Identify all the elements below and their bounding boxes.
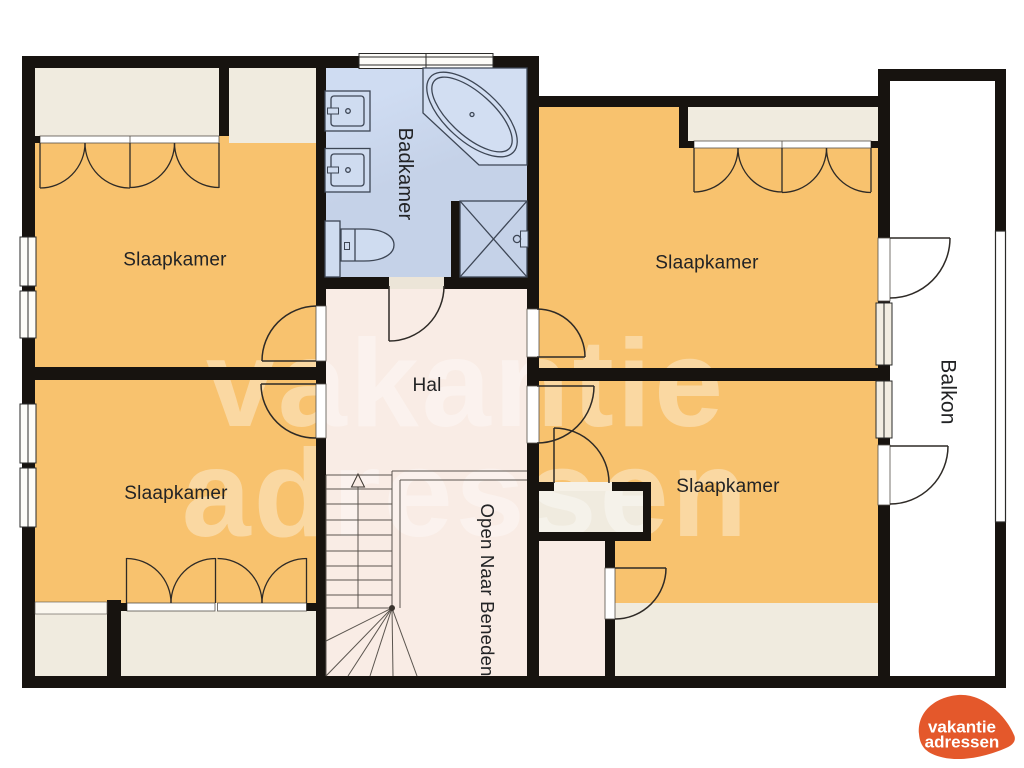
- svg-text:Hal: Hal: [412, 375, 441, 396]
- svg-text:Balkon: Balkon: [937, 359, 960, 424]
- svg-text:Slaapkamer: Slaapkamer: [123, 250, 227, 271]
- svg-text:Slaapkamer: Slaapkamer: [124, 483, 228, 504]
- svg-text:Open Naar Beneden: Open Naar Beneden: [477, 503, 498, 676]
- svg-text:Slaapkamer: Slaapkamer: [676, 476, 780, 497]
- svg-text:Badkamer: Badkamer: [394, 128, 416, 221]
- svg-text:adressen: adressen: [182, 425, 751, 563]
- svg-text:adressen: adressen: [925, 733, 1000, 752]
- svg-text:Slaapkamer: Slaapkamer: [655, 253, 759, 274]
